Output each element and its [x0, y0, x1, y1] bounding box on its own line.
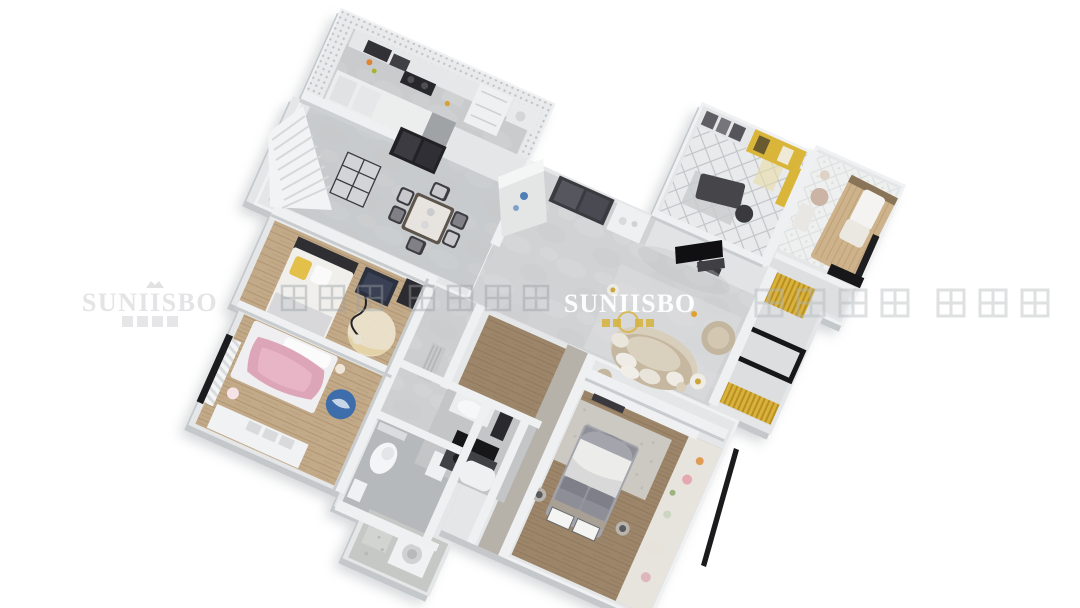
- svg-text:SUNIISBO: SUNIISBO: [564, 289, 696, 318]
- svg-text:SUNIISBO: SUNIISBO: [82, 288, 218, 317]
